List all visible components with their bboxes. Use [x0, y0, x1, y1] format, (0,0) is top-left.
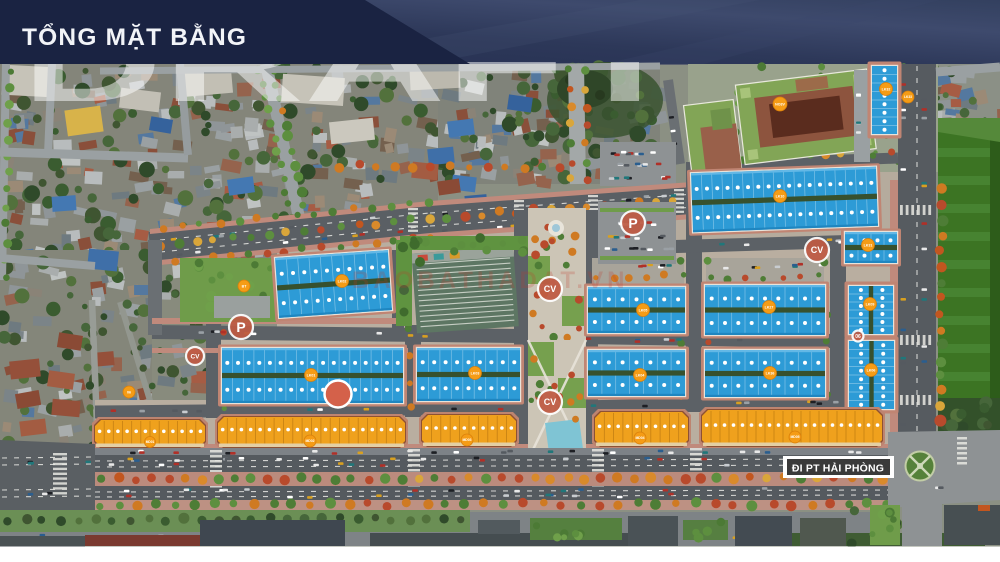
svg-text:LK01: LK01 [307, 373, 316, 377]
svg-text:CV: CV [544, 284, 557, 294]
svg-text:MD03: MD03 [462, 438, 471, 442]
svg-text:LK02: LK02 [338, 279, 347, 283]
svg-text:CV: CV [811, 245, 824, 255]
svg-text:LK03: LK03 [471, 371, 480, 375]
svg-text:LK04: LK04 [636, 373, 645, 377]
svg-text:LK10: LK10 [776, 194, 785, 198]
svg-text:LK06: LK06 [867, 368, 876, 372]
svg-text:LK32: LK32 [882, 87, 891, 91]
svg-text:CV: CV [544, 397, 557, 407]
svg-text:LK05: LK05 [639, 308, 648, 312]
svg-text:TỔNG MẶT BẰNG: TỔNG MẶT BẰNG [22, 23, 247, 51]
svg-text:P: P [628, 215, 637, 231]
svg-text:LK36: LK36 [766, 371, 775, 375]
svg-text:06: 06 [855, 334, 861, 340]
svg-text:LK33: LK33 [904, 95, 912, 99]
svg-text:LK27: LK27 [765, 305, 774, 309]
svg-text:BT: BT [242, 284, 248, 288]
svg-text:MD05: MD05 [790, 435, 799, 439]
svg-text:NO3V: NO3V [775, 102, 785, 106]
svg-text:P: P [236, 319, 245, 335]
svg-text:06: 06 [127, 390, 131, 394]
svg-text:LK31: LK31 [864, 243, 873, 247]
svg-text:CV: CV [190, 353, 200, 360]
svg-text:ĐI PT HẢI PHÒNG: ĐI PT HẢI PHÒNG [792, 462, 884, 475]
svg-text:MD02: MD02 [305, 439, 314, 443]
svg-text:MD01: MD01 [146, 440, 155, 444]
svg-text:MD04: MD04 [635, 436, 644, 440]
svg-text:LK09: LK09 [866, 302, 875, 306]
svg-text:BAOBATHADAT.VN: BAOBATHADAT.VN [352, 267, 628, 294]
